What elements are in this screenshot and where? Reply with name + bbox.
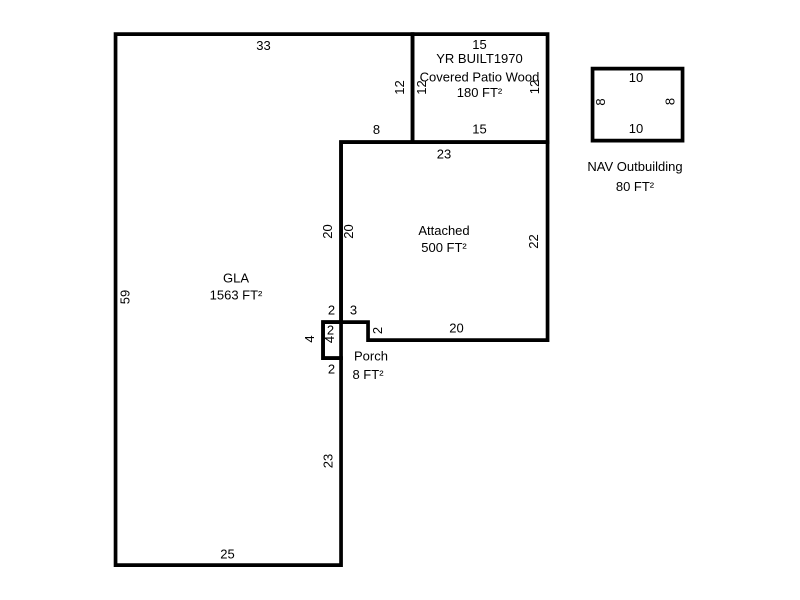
svg-text:2: 2 (328, 362, 335, 377)
svg-text:15: 15 (472, 122, 486, 137)
svg-text:NAV Outbuilding: NAV Outbuilding (587, 159, 682, 174)
svg-text:10: 10 (629, 121, 643, 136)
svg-text:23: 23 (321, 454, 336, 468)
svg-text:Attached: Attached (418, 223, 469, 238)
svg-text:GLA: GLA (223, 270, 249, 285)
svg-text:20: 20 (341, 224, 356, 238)
svg-text:10: 10 (629, 70, 643, 85)
svg-text:2: 2 (370, 327, 385, 334)
svg-text:12: 12 (527, 80, 542, 94)
svg-text:33: 33 (256, 38, 270, 53)
svg-text:4: 4 (302, 335, 317, 342)
svg-text:22: 22 (526, 234, 541, 248)
svg-text:180 FT²: 180 FT² (457, 85, 503, 100)
svg-text:YR BUILT1970: YR BUILT1970 (436, 51, 522, 66)
svg-text:12: 12 (392, 80, 407, 94)
svg-text:2: 2 (328, 303, 335, 318)
svg-text:Covered Patio Wood: Covered Patio Wood (420, 69, 540, 84)
svg-text:4: 4 (322, 336, 337, 343)
svg-text:23: 23 (437, 147, 451, 162)
svg-text:80 FT²: 80 FT² (616, 179, 655, 194)
svg-text:Porch: Porch (354, 348, 388, 363)
svg-text:2: 2 (327, 323, 334, 338)
svg-text:500 FT²: 500 FT² (421, 240, 467, 255)
svg-text:25: 25 (220, 547, 234, 562)
svg-text:20: 20 (320, 224, 335, 238)
svg-text:8: 8 (663, 98, 678, 105)
svg-text:20: 20 (449, 321, 463, 336)
svg-text:8: 8 (373, 122, 380, 137)
svg-text:59: 59 (118, 290, 133, 304)
svg-text:12: 12 (414, 80, 429, 94)
svg-text:3: 3 (350, 303, 357, 318)
svg-text:1563 FT²: 1563 FT² (210, 288, 263, 303)
svg-text:8 FT²: 8 FT² (352, 367, 384, 382)
svg-text:8: 8 (593, 98, 608, 105)
